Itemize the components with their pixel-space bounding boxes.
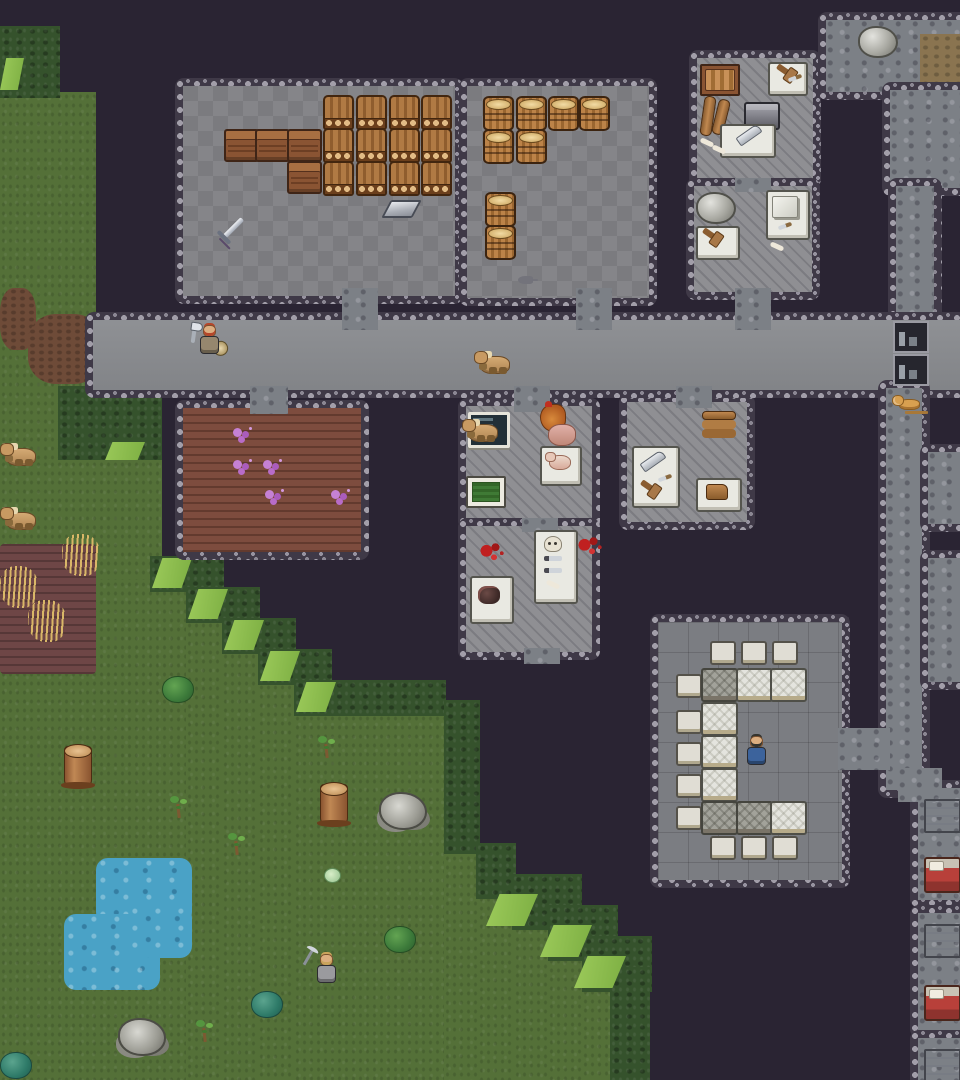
logs[interactable] [356,161,387,196]
chair[interactable] [772,641,798,665]
chair[interactable] [676,806,702,830]
rockpile[interactable] [379,792,427,830]
cow[interactable] [474,348,511,379]
cliff-wall [444,700,480,856]
shrub[interactable] [384,926,416,953]
grass-field [444,854,480,1080]
table-l[interactable] [701,735,738,769]
fortress-map[interactable] [0,0,960,1080]
bin[interactable] [287,161,322,194]
bin[interactable] [255,129,290,162]
doorway [676,386,712,408]
doorway [735,178,771,192]
chair[interactable] [676,742,702,766]
logs[interactable] [323,95,354,130]
chair[interactable] [676,710,702,734]
cave-passage [890,90,960,188]
table-d[interactable] [701,668,738,702]
doorway [250,386,288,414]
rack[interactable] [893,321,929,353]
grass-field [222,643,260,1080]
plump[interactable] [230,456,256,474]
boulder[interactable] [858,26,898,58]
trough[interactable] [466,476,506,508]
barrel[interactable] [516,129,547,164]
chair[interactable] [741,836,767,860]
logs[interactable] [323,128,354,163]
chair[interactable] [676,674,702,698]
barrel[interactable] [483,129,514,164]
logs[interactable] [421,95,452,130]
tunnel [886,388,922,790]
table-l[interactable] [770,668,807,702]
dwarf-miner[interactable] [314,952,337,984]
cave-passage [896,186,934,322]
table-l[interactable] [701,702,738,736]
pond-water[interactable] [128,906,192,958]
slug[interactable] [324,868,341,883]
cabinet[interactable] [924,1049,960,1080]
barrel[interactable] [485,225,516,260]
bed[interactable] [924,985,960,1021]
mined-notch [928,558,960,682]
vermin[interactable] [518,276,533,284]
underground-farm [183,408,361,552]
barrel[interactable] [579,96,610,131]
plump[interactable] [262,486,288,504]
logs[interactable] [323,161,354,196]
woodchunk[interactable] [706,484,728,500]
logpile[interactable] [702,410,736,440]
cow[interactable] [0,504,37,535]
cliff-wall [476,843,516,899]
chair[interactable] [741,641,767,665]
chair[interactable] [772,836,798,860]
bed[interactable] [924,857,960,893]
grass-field [258,674,296,1080]
logs[interactable] [356,95,387,130]
chair[interactable] [710,836,736,860]
logs[interactable] [389,95,420,130]
knife[interactable] [544,556,562,561]
logs[interactable] [356,128,387,163]
doorway [524,648,560,664]
skull[interactable] [544,536,562,552]
shrubteal[interactable] [251,991,283,1018]
calf[interactable] [546,450,572,474]
pig[interactable] [548,424,576,446]
dwarf-axe[interactable] [197,323,220,355]
plump[interactable] [328,486,354,504]
logs[interactable] [389,161,420,196]
mined-notch [928,452,960,524]
cabinet[interactable] [924,799,960,833]
doorway [576,288,612,330]
crate[interactable] [700,64,740,96]
grass-field [294,705,446,1080]
grass-field [582,988,610,1080]
block[interactable] [772,196,798,218]
logs[interactable] [421,161,452,196]
cabinet[interactable] [924,924,960,958]
logs[interactable] [421,128,452,163]
plump[interactable] [260,456,286,474]
logs[interactable] [389,128,420,163]
stump[interactable] [64,746,92,788]
rack[interactable] [893,354,929,386]
sapling[interactable] [168,796,188,820]
grass-field [548,957,584,1080]
blood[interactable] [476,540,506,564]
shrubteal[interactable] [0,1052,32,1079]
cow[interactable] [0,440,37,471]
dwarf-axe-detail [191,323,198,343]
table-l[interactable] [701,768,738,802]
dining-exit-corridor [838,728,890,770]
bin[interactable] [224,129,259,162]
sapling[interactable] [316,736,336,760]
cat[interactable] [892,390,923,416]
plump[interactable] [230,424,256,442]
stump[interactable] [320,784,348,826]
wheat[interactable] [28,600,66,642]
chair[interactable] [710,641,736,665]
wheat[interactable] [0,566,38,608]
shrub[interactable] [162,676,194,703]
knife[interactable] [544,568,562,573]
barrel[interactable] [516,96,547,131]
dwarf-blue[interactable] [744,734,767,766]
bedroom-link [898,768,942,802]
barrel[interactable] [485,192,516,227]
table-d[interactable] [701,801,738,835]
doorway [735,288,771,330]
sapling[interactable] [226,833,246,857]
blood[interactable] [574,534,604,558]
table-l[interactable] [736,668,773,702]
table-l[interactable] [770,801,807,835]
barrel[interactable] [548,96,579,131]
barrel[interactable] [483,96,514,131]
cow[interactable] [462,416,499,447]
boulder[interactable] [696,192,736,224]
cliff-wall [610,967,650,1080]
rockpile[interactable] [118,1018,166,1056]
table-d[interactable] [736,801,773,835]
chair[interactable] [676,774,702,798]
doorway [342,288,378,330]
sapling[interactable] [194,1020,214,1044]
bin[interactable] [287,129,322,162]
wheat[interactable] [62,534,100,576]
meat[interactable] [478,586,500,604]
